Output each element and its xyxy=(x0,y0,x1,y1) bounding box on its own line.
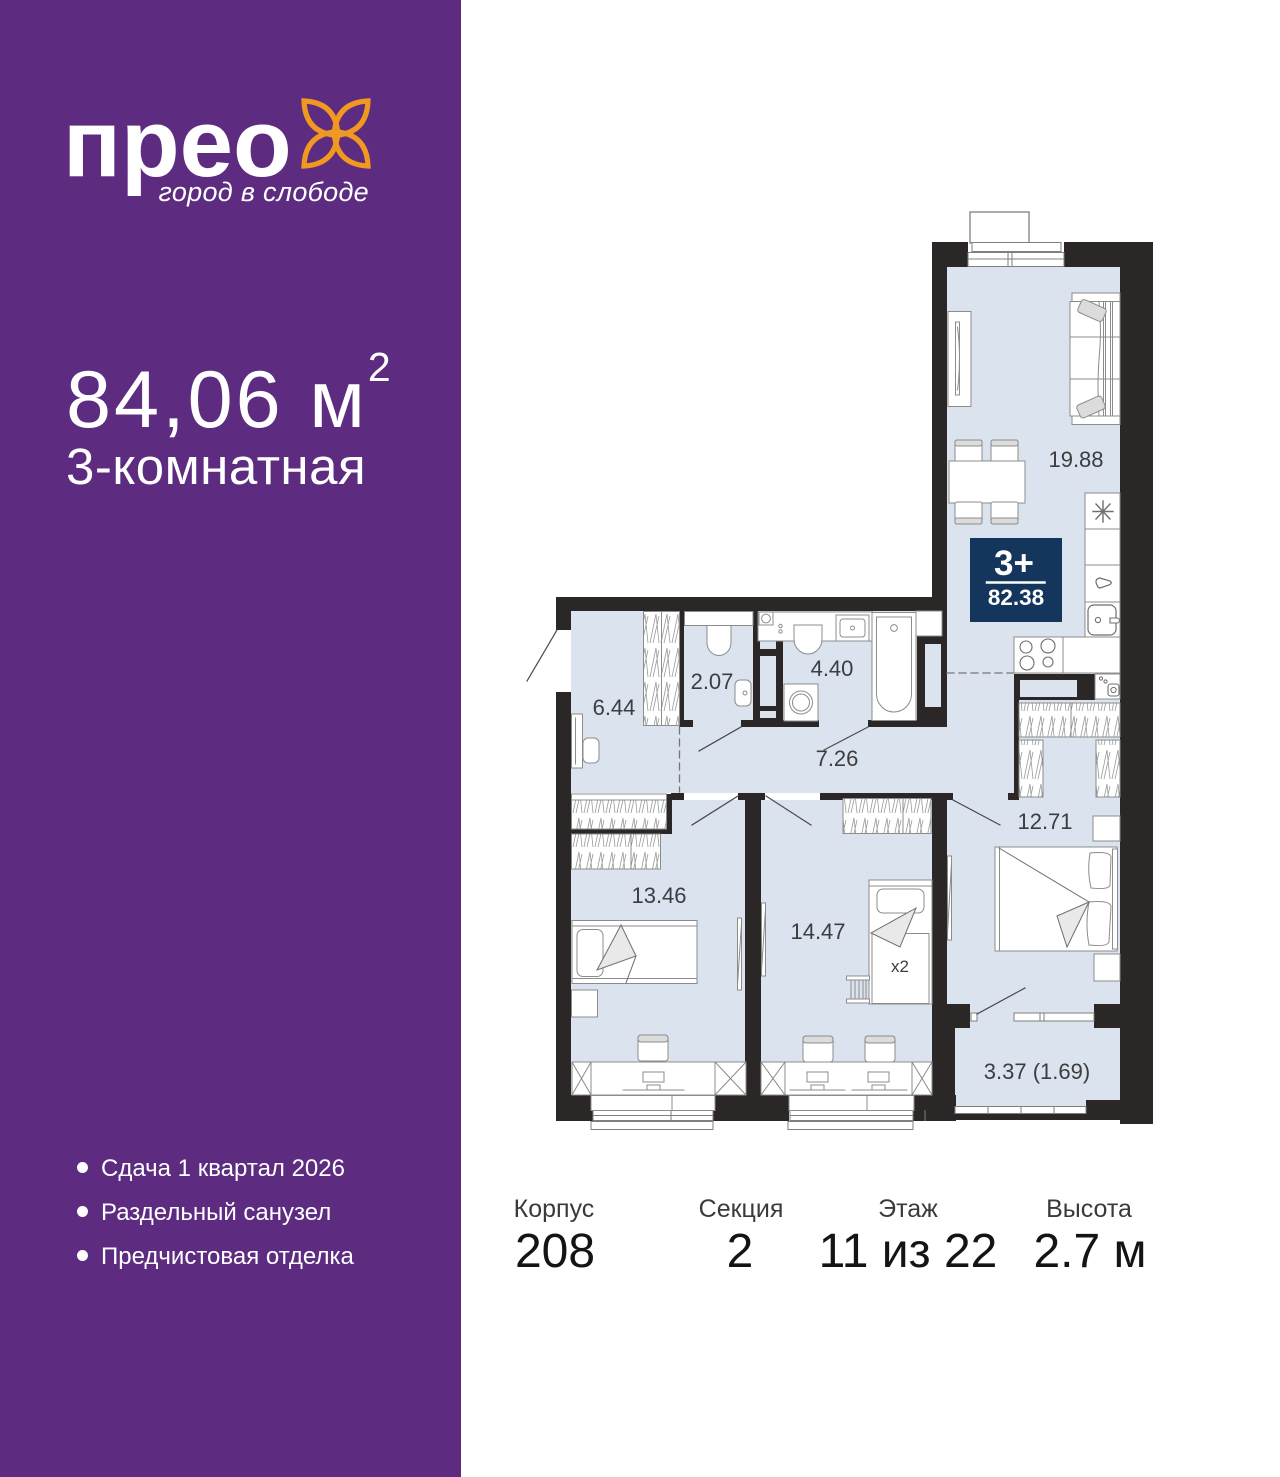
svg-text:12.71: 12.71 xyxy=(1017,809,1072,834)
svg-text:19.88: 19.88 xyxy=(1048,447,1103,472)
svg-text:4.40: 4.40 xyxy=(811,656,854,681)
svg-text:3.37 (1.69): 3.37 (1.69) xyxy=(984,1059,1090,1084)
svg-text:3+: 3+ xyxy=(994,544,1034,583)
svg-text:2.07: 2.07 xyxy=(691,669,734,694)
svg-text:14.47: 14.47 xyxy=(790,919,845,944)
svg-text:82.38: 82.38 xyxy=(988,585,1044,610)
svg-text:13.46: 13.46 xyxy=(631,883,686,908)
svg-text:x2: x2 xyxy=(891,957,909,976)
svg-text:7.26: 7.26 xyxy=(816,746,859,771)
svg-text:6.44: 6.44 xyxy=(593,695,636,720)
